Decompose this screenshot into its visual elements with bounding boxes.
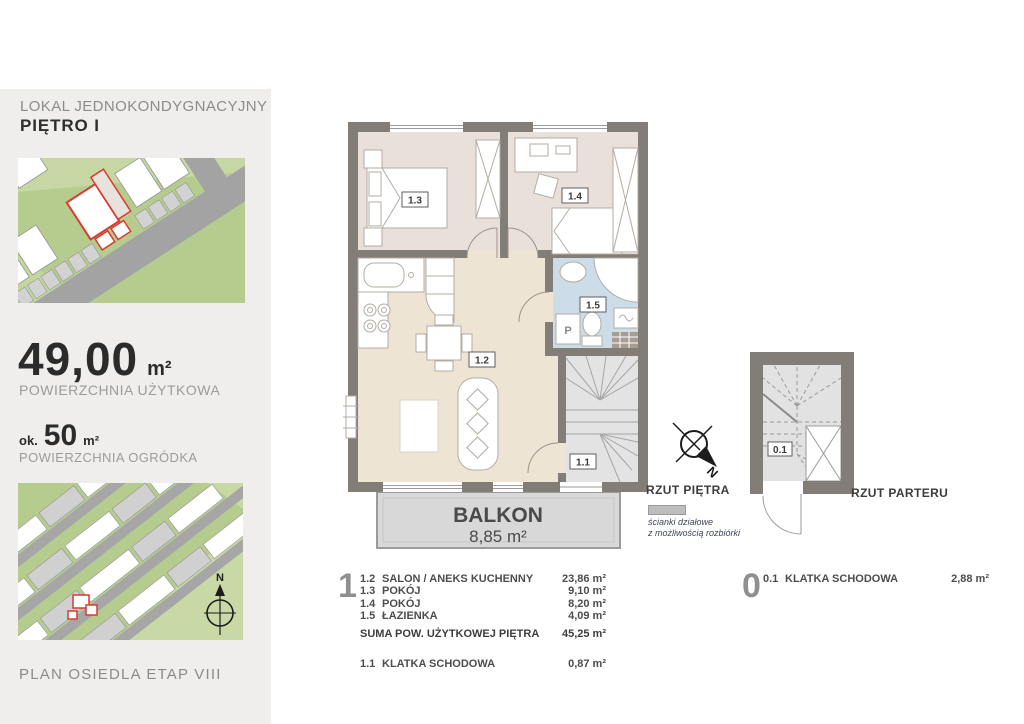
legend-row-area: 4,09 m² bbox=[544, 610, 606, 622]
legend-row: 1.2 SALON / ANEKS KUCHENNY 23,86 m² bbox=[360, 573, 606, 585]
entrance-door bbox=[763, 494, 801, 534]
sidebar-footer: PLAN OSIEDLA ETAP VIII bbox=[19, 666, 222, 683]
legend-row-no: 1.1 bbox=[360, 658, 382, 670]
usable-area-label: POWIERZCHNIA UŻYTKOWA bbox=[19, 382, 220, 398]
legend-row: 1.5 ŁAZIENKA 4,09 m² bbox=[360, 610, 606, 622]
legend-sum-row: SUMA POW. UŻYTKOWEJ PIĘTRA 45,25 m² bbox=[360, 628, 606, 641]
legend-row-area: 9,10 m² bbox=[544, 585, 606, 597]
chair bbox=[435, 361, 453, 371]
usable-area: 49,00 m² bbox=[18, 332, 172, 386]
garden-area: ok. 50 m² bbox=[19, 419, 99, 453]
legend-ground-number: 0 bbox=[742, 569, 761, 603]
room-label-living: 1.2 bbox=[475, 356, 489, 367]
legend-row: 0.1 KLATKA SCHODOWA 2,88 m² bbox=[763, 573, 989, 585]
legend-row-no: 1.2 bbox=[360, 573, 382, 585]
room-label-bedroom-right: 1.4 bbox=[568, 192, 582, 203]
ground-room-label: 0.1 bbox=[773, 445, 787, 456]
legend-note-line1: ścianki działowe bbox=[648, 517, 713, 527]
legend-note-line2: z możliwością rozbiórki bbox=[648, 528, 740, 538]
floor-plan-drawing: BALKON 8,85 m² bbox=[330, 110, 670, 560]
legend-row-area: 8,20 m² bbox=[544, 598, 606, 610]
legend-sum-label: SUMA POW. UŻYTKOWEJ PIĘTRA bbox=[360, 628, 544, 641]
legend-row-area: 23,86 m² bbox=[544, 573, 606, 585]
usable-area-unit: m² bbox=[147, 358, 171, 381]
legend-stairs-row: 1.1 KLATKA SCHODOWA 0,87 m² bbox=[360, 658, 606, 670]
legend-row-no: 1.3 bbox=[360, 585, 382, 597]
chair bbox=[462, 334, 472, 352]
legend-ground: 0 0.1 KLATKA SCHODOWA 2,88 m² bbox=[742, 568, 990, 585]
legend-row-no: 0.1 bbox=[763, 573, 785, 585]
page: LOKAL JEDNOKONDYGNACYJNY PIĘTRO I bbox=[0, 0, 1024, 724]
dining-table bbox=[427, 326, 461, 360]
garden-area-label: POWIERZCHNIA OGRÓDKA bbox=[19, 450, 197, 465]
north-label: N bbox=[704, 464, 721, 478]
usable-area-value: 49,00 bbox=[18, 332, 138, 386]
site-map-detail bbox=[18, 158, 245, 303]
nightstand bbox=[364, 228, 382, 246]
legend-floor-number: 1 bbox=[338, 569, 357, 603]
estate-plan-map: N bbox=[18, 483, 243, 640]
room-label-bathroom: 1.5 bbox=[586, 301, 600, 312]
legend-row-no: 1.4 bbox=[360, 598, 382, 610]
north-compass: N bbox=[664, 414, 728, 478]
washbasin bbox=[560, 262, 586, 282]
toilet-tank bbox=[582, 336, 602, 346]
kitchen-sink bbox=[364, 263, 404, 287]
nightstand bbox=[364, 150, 382, 168]
garden-area-prefix: ok. bbox=[19, 433, 38, 448]
garden-area-value: 50 bbox=[44, 419, 77, 453]
legend-row-name: POKÓJ bbox=[382, 598, 544, 610]
cabinet bbox=[426, 258, 454, 276]
ground-plan-title: RZUT PARTERU bbox=[851, 486, 948, 500]
legend-row-no: 1.5 bbox=[360, 610, 382, 622]
legend-sum-area: 45,25 m² bbox=[544, 628, 606, 641]
sidebar-floor-title: PIĘTRO I bbox=[20, 116, 100, 136]
legend-row-name: KLATKA SCHODOWA bbox=[382, 658, 544, 670]
garden-area-unit: m² bbox=[83, 433, 99, 448]
balcony-label: BALKON bbox=[453, 504, 543, 527]
balcony-area: 8,85 m² bbox=[469, 527, 527, 546]
floor-plan-title: RZUT PIĘTRA bbox=[646, 483, 730, 497]
washer-label: P bbox=[564, 325, 571, 337]
chair bbox=[534, 174, 558, 198]
legend-row: 1.3 POKÓJ 9,10 m² bbox=[360, 585, 606, 597]
legend-row-name: SALON / ANEKS KUCHENNY bbox=[382, 573, 544, 585]
toilet bbox=[583, 312, 601, 336]
legend-row-name: POKÓJ bbox=[382, 585, 544, 597]
chair bbox=[435, 315, 453, 325]
legend-row-name: KLATKA SCHODOWA bbox=[785, 573, 927, 585]
legend-row-area: 2,88 m² bbox=[927, 573, 989, 585]
chair bbox=[416, 334, 426, 352]
balcony: BALKON 8,85 m² bbox=[377, 492, 620, 548]
room-label-stairs: 1.1 bbox=[576, 458, 590, 469]
partition-wall-swatch bbox=[648, 505, 686, 515]
legend-floor: 1 1.2 SALON / ANEKS KUCHENNY 23,86 m² 1.… bbox=[338, 568, 608, 670]
cabinet bbox=[426, 276, 454, 294]
sidebar: LOKAL JEDNOKONDYGNACYJNY PIĘTRO I bbox=[0, 89, 271, 724]
tiled-area bbox=[612, 332, 638, 348]
map-compass-label: N bbox=[216, 572, 224, 584]
legend-row-name: ŁAZIENKA bbox=[382, 610, 544, 622]
room-label-bedroom-left: 1.3 bbox=[408, 196, 422, 207]
rug bbox=[400, 400, 438, 452]
sidebar-title: LOKAL JEDNOKONDYGNACYJNY bbox=[20, 98, 267, 115]
legend-row: 1.4 POKÓJ 8,20 m² bbox=[360, 598, 606, 610]
legend-row-area: 0,87 m² bbox=[544, 658, 606, 670]
ground-plan-drawing: 0.1 bbox=[742, 344, 862, 544]
